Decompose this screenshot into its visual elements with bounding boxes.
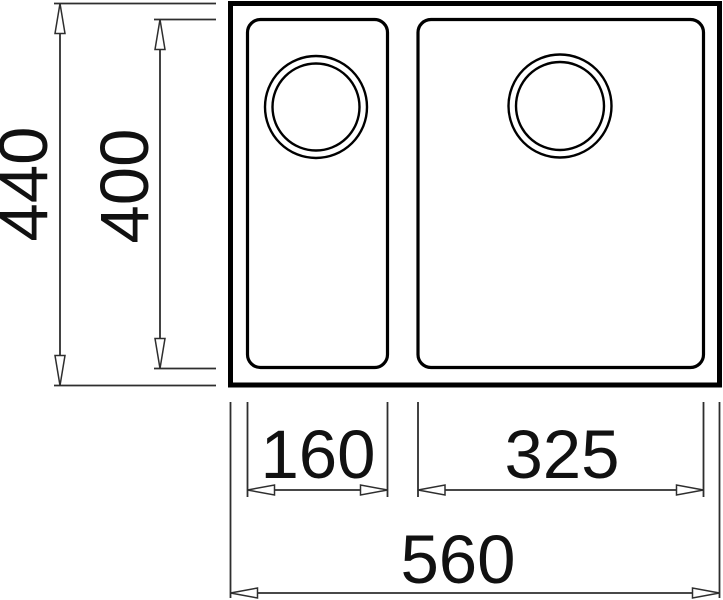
sink-dimension-diagram: 440 400 160 325 560 — [0, 0, 723, 600]
arrow-560-left-icon — [231, 588, 258, 598]
dim-label-left-bowl-width: 160 — [260, 416, 375, 493]
arrow-400-up-icon — [155, 20, 165, 50]
arrow-440-up-icon — [55, 4, 65, 34]
dim-label-right-bowl-width: 325 — [504, 416, 619, 493]
arrow-325-right-icon — [677, 485, 704, 495]
left-bowl — [248, 20, 388, 368]
dim-label-overall-depth: 440 — [0, 126, 62, 241]
dim-label-bowl-depth: 400 — [86, 128, 163, 243]
arrow-325-left-icon — [418, 485, 445, 495]
arrow-400-down-icon — [155, 339, 165, 369]
right-bowl — [418, 20, 704, 368]
sink-outline-group — [231, 4, 720, 386]
dim-label-overall-width: 560 — [400, 521, 515, 598]
diagram-canvas: 440 400 160 325 560 — [0, 0, 723, 600]
arrow-560-right-icon — [693, 588, 720, 598]
arrow-440-down-icon — [55, 356, 65, 386]
